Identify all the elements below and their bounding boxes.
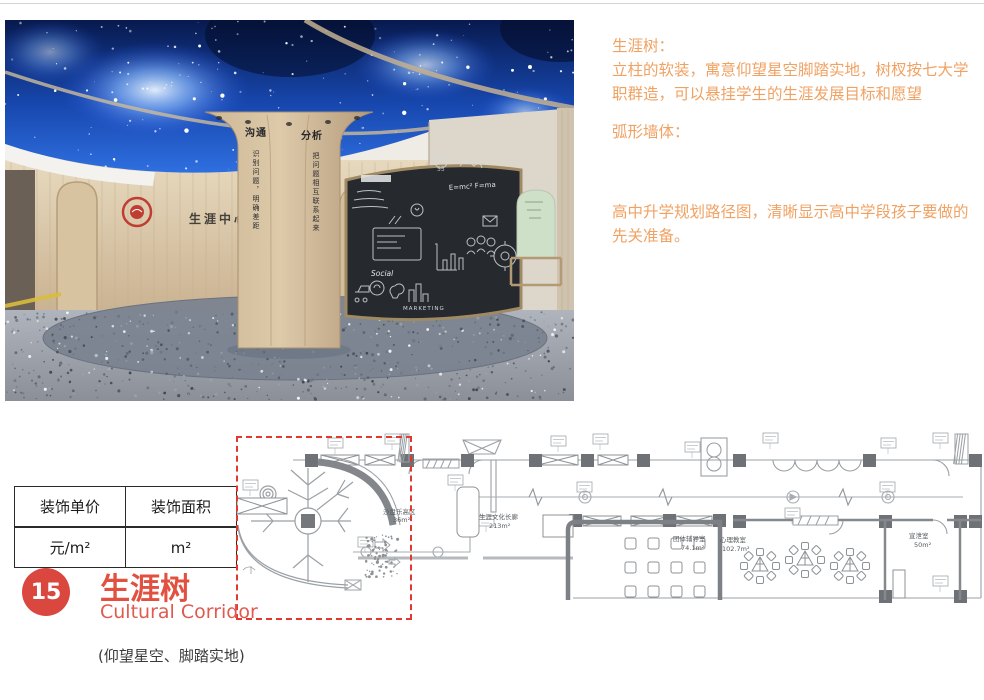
room-label-name: 宣泄室	[909, 531, 929, 540]
column-script-left: 识别问题，明确差距	[252, 150, 260, 231]
price-table-header-unit: 装饰单价	[15, 487, 126, 528]
room-label-area: 102.7m²	[722, 545, 750, 553]
slide-page: 生涯中心	[0, 0, 984, 700]
svg-text:55: 55	[437, 166, 445, 173]
annotation-heading-2: 弧形墙体：	[612, 120, 978, 144]
page-subtitle: Cultural Corridor	[100, 601, 258, 623]
price-table-header-area: 装饰面积	[126, 487, 237, 528]
room-label-name: 生涯文化长廊	[479, 512, 519, 521]
item-number: 15	[31, 580, 62, 605]
interior-render-photo: 生涯中心	[5, 20, 574, 401]
highlight-dashed-box	[236, 436, 412, 620]
column-word-left: 沟通	[245, 126, 267, 139]
room-label-area: 74.1m²	[681, 544, 705, 552]
room-label-area: 50m²	[914, 541, 932, 549]
top-divider	[0, 3, 984, 4]
annotation-body-2: 高中升学规划路径图，清晰显示高中学段孩子要做的先关准备。	[612, 200, 978, 248]
price-table-value-unit: 元/m²	[15, 527, 126, 568]
annotation-panel: 生涯树： 立柱的软装，寓意仰望星空脚踏实地，树杈按七大学职群造，可以悬挂学生的生…	[612, 34, 978, 248]
room-label-name: 团体辅导室	[673, 534, 706, 543]
chalk-marketing-text: MARKETING	[403, 306, 445, 312]
column-word-right: 分析	[301, 129, 323, 142]
room-label-area: 213m²	[489, 522, 511, 530]
column-script-right: 把问题相互联系起来	[312, 151, 320, 233]
arch-niche	[57, 182, 97, 316]
annotation-heading-1: 生涯树：	[612, 34, 978, 58]
plan-group-room	[568, 522, 720, 600]
page-tagline: (仰望星空、脚踏实地)	[98, 645, 245, 666]
price-table: 装饰单价 装饰面积 元/m² m²	[14, 486, 237, 568]
annotation-body-1: 立柱的软装，寓意仰望星空脚踏实地，树杈按七大学职群造，可以悬挂学生的生涯发展目标…	[612, 58, 978, 106]
chalk-social-text: Social	[371, 269, 394, 278]
corridor-opening	[5, 170, 35, 316]
item-number-badge: 15	[22, 568, 70, 616]
interior-render-svg: 生涯中心	[5, 20, 574, 401]
price-table-value-area: m²	[126, 527, 237, 568]
chalkboard-wall: 55 E=mc² F=ma Social MARKETING	[346, 156, 521, 320]
room-label-name: 心理教室	[720, 535, 747, 544]
plan-table-clusters	[741, 543, 870, 584]
